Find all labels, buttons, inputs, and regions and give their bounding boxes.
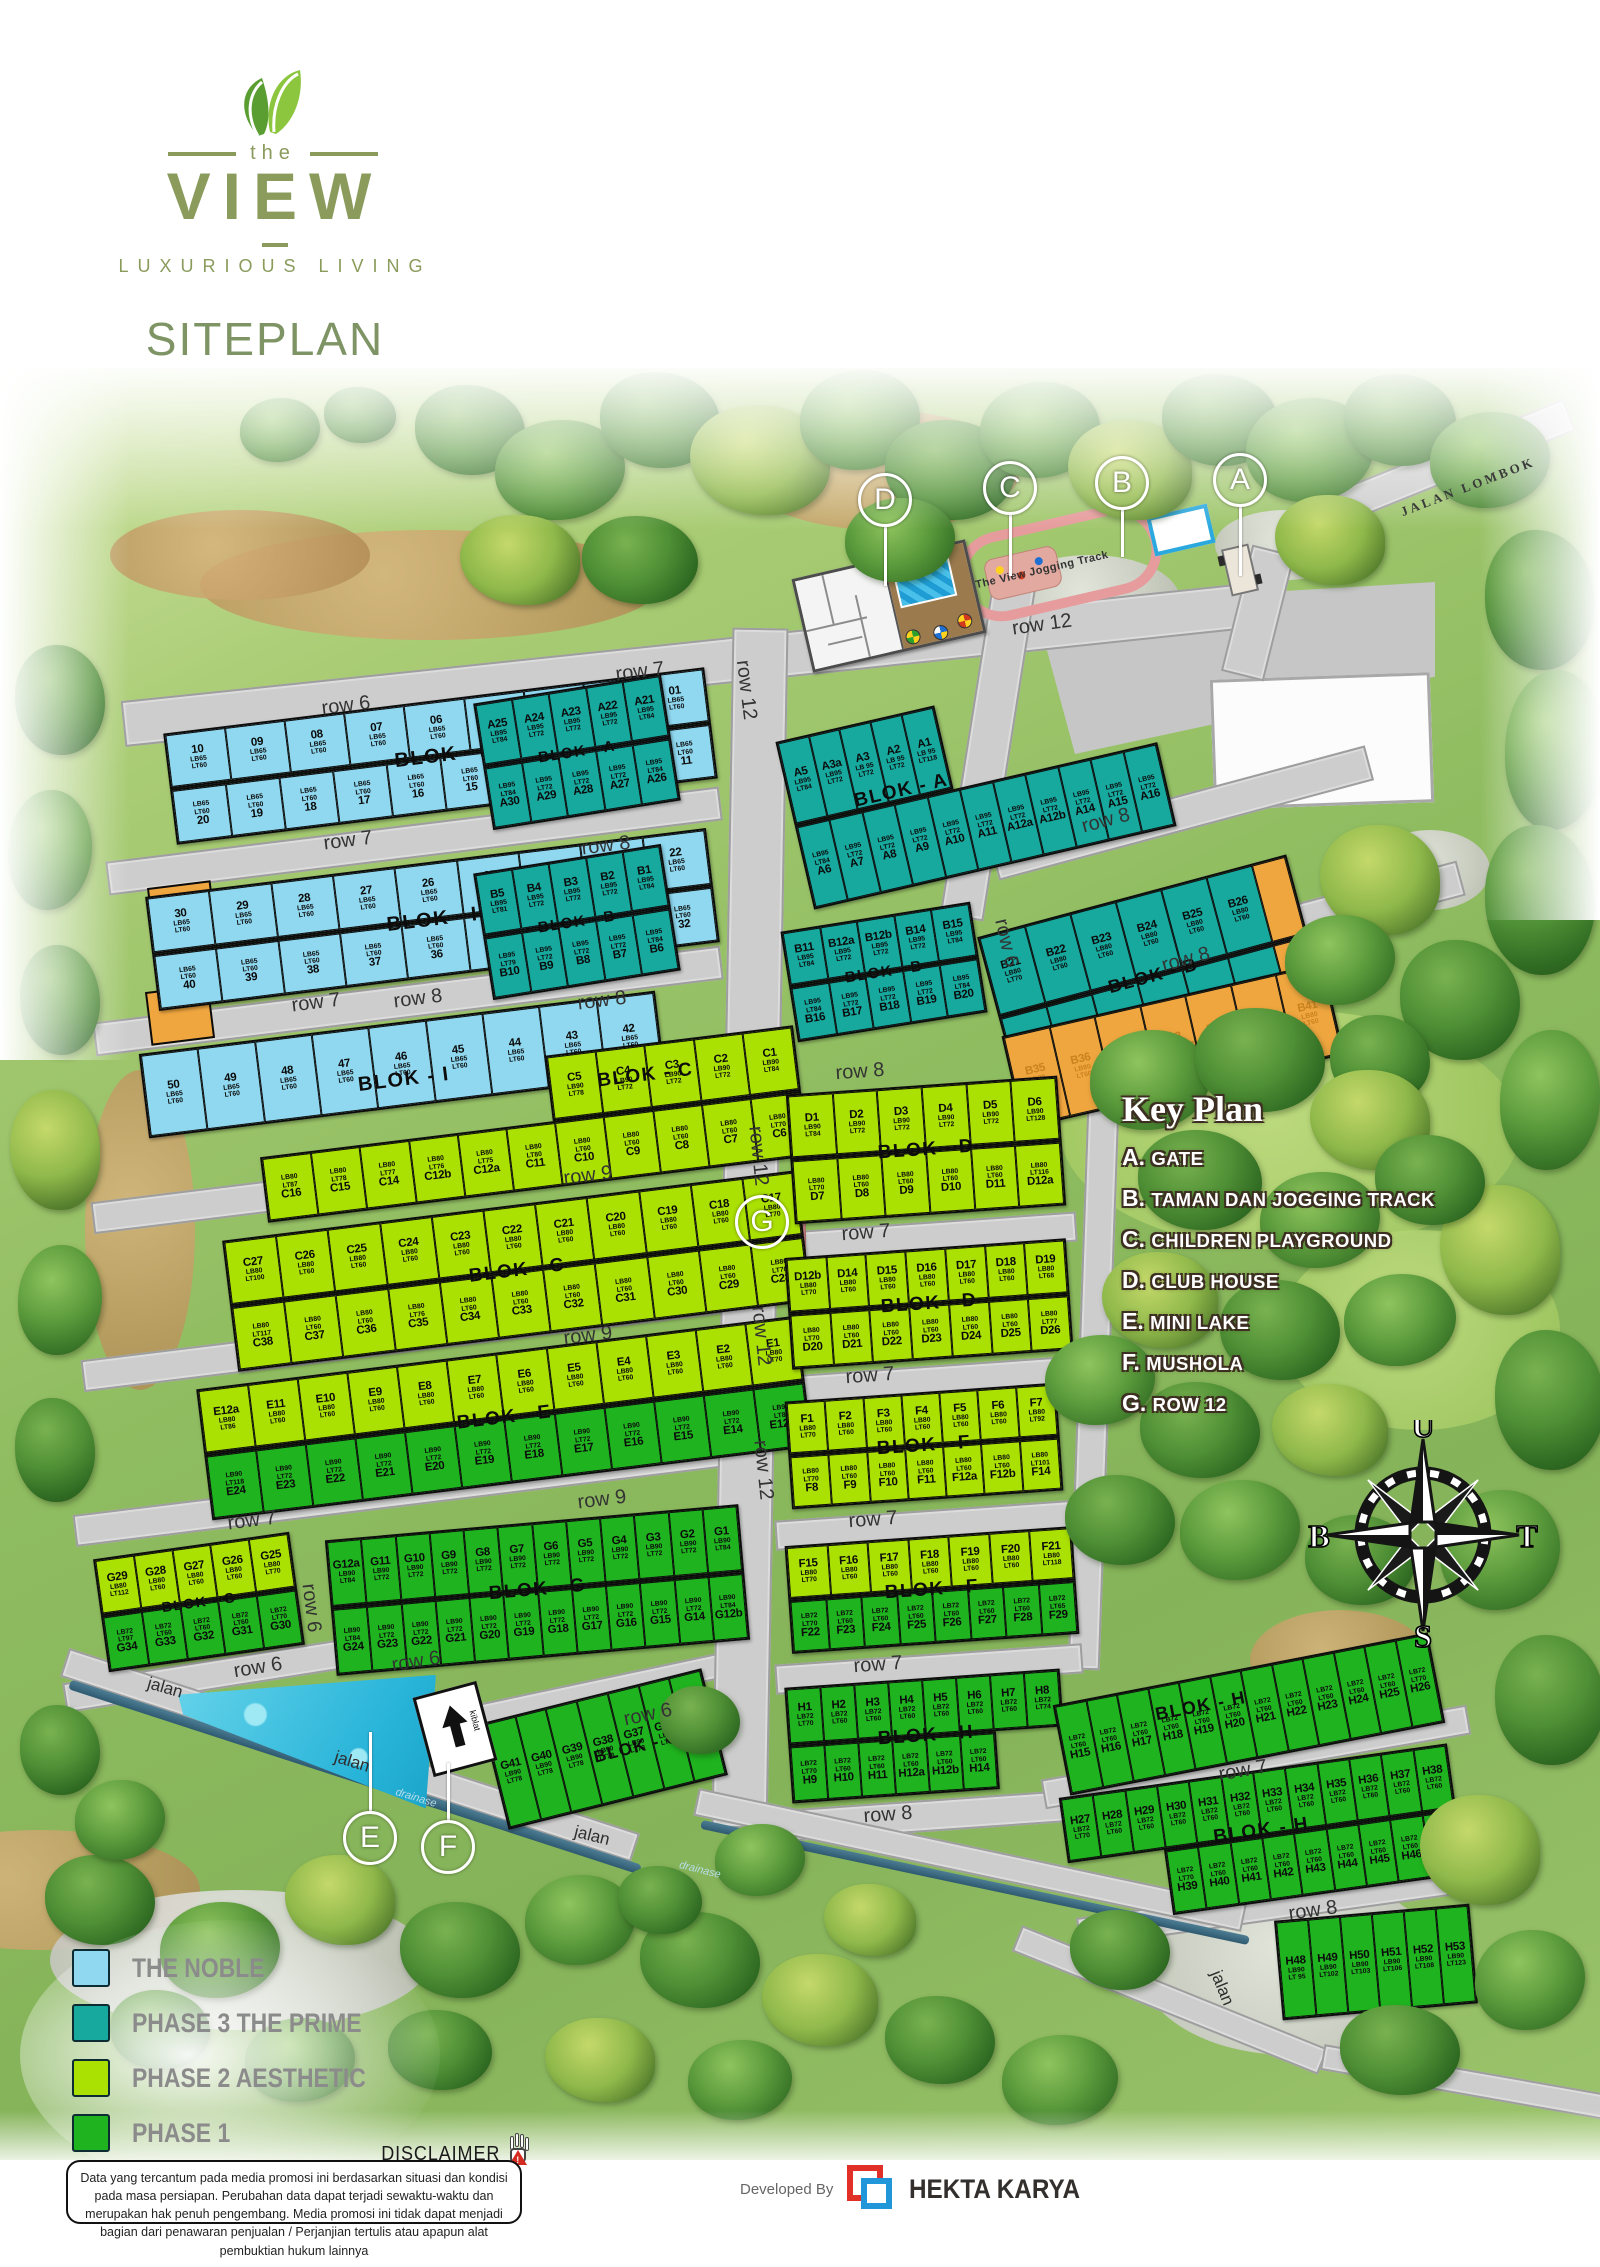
lot-lt: LT60	[934, 1711, 950, 1719]
lot-lt: LT60	[369, 1405, 385, 1414]
lot-G12a: G12aLB90LT84	[327, 1539, 367, 1606]
lot-lt: LT60	[1299, 1801, 1315, 1810]
lot-id: B18	[879, 1000, 901, 1014]
lot-lt: LT78	[568, 1090, 584, 1099]
lot-id: G30	[270, 1620, 292, 1634]
lot-id: C10	[574, 1151, 595, 1164]
lot-id: B9	[539, 960, 555, 973]
lot-id: D26	[1040, 1325, 1061, 1337]
compass-west-label: B	[1308, 1518, 1329, 1554]
tree-icon	[582, 516, 698, 604]
lot-F12b: LB80LT60F12b	[981, 1441, 1023, 1494]
lot-lt: LT72	[442, 1568, 458, 1576]
lot-lt: LT60	[1331, 1796, 1347, 1805]
lot-lt: LT60	[1427, 1783, 1443, 1792]
lot-G16: LB90LT72G16	[606, 1583, 646, 1650]
block-strip-f2: F15LB80LT70F16LB80LT60F17LB80LT60F18LB80…	[785, 1526, 1080, 1654]
lot-lt: LT72	[510, 1562, 526, 1570]
lot-38: LB65LT6038	[278, 933, 346, 994]
lot-id: A29	[536, 789, 558, 803]
lot-lt: LT84	[639, 883, 655, 892]
lot-lt: LT86	[220, 1423, 236, 1432]
lot-id: B6	[649, 942, 665, 955]
lot-lt: LT60	[968, 1708, 984, 1716]
lot-id: G15	[650, 1614, 672, 1627]
lot-F1: F1LB80LT70	[787, 1401, 829, 1454]
umbrella-icon	[932, 624, 950, 642]
lot-id: F27	[978, 1614, 998, 1626]
tree-icon	[20, 1705, 100, 1795]
key-plan-letter: G.	[1122, 1390, 1153, 1416]
lot-lt: LT60	[419, 1399, 435, 1408]
lot-F21: F21LB80LT118	[1030, 1528, 1074, 1581]
lot-id: D24	[961, 1330, 982, 1342]
block-strip-h1: H1LB72LT70H2LB72LT60H3LB72LT60H4LB72LT60…	[784, 1669, 1067, 1804]
lot-lt: LT60	[1267, 1805, 1283, 1814]
lot-id: G21	[445, 1632, 467, 1645]
lot-id: F9	[843, 1479, 857, 1491]
lot-id: H26	[1409, 1681, 1431, 1696]
road-label: row 7	[841, 1220, 891, 1246]
leaf-logo-icon	[228, 62, 318, 146]
key-plan-label: CLUB HOUSE	[1151, 1271, 1278, 1292]
lot-lt: LT60	[167, 1097, 183, 1106]
lot-lt: LT60	[270, 1417, 286, 1426]
lot-id: 39	[245, 972, 258, 984]
lot-lt: LT60	[351, 1262, 367, 1271]
legend-swatch	[72, 2059, 110, 2097]
lot-id: E24	[226, 1485, 247, 1498]
lot-id: C8	[674, 1140, 689, 1153]
lot-A26: LB95LT84A26	[632, 739, 678, 804]
key-plan-letter: C.	[1122, 1226, 1151, 1252]
lot-F20: F20LB80LT60	[989, 1531, 1033, 1584]
lot-D7: LB80LT70D7	[792, 1158, 841, 1222]
lot-id: B19	[916, 994, 938, 1008]
legend-row: PHASE 1	[72, 2113, 407, 2153]
lot-lt: LT60	[360, 903, 376, 912]
lot-id: H19	[1193, 1723, 1215, 1738]
lot-lt: LT60	[877, 1427, 893, 1435]
lot-id: C31	[615, 1291, 636, 1304]
lot-id: 17	[357, 795, 370, 807]
disclaimer-box: Data yang tercantum pada media promosi i…	[66, 2160, 522, 2224]
lot-id: C11	[525, 1157, 546, 1170]
lot-id: H22	[1286, 1705, 1308, 1720]
lot-E9: E9LB80LT60	[348, 1367, 405, 1435]
key-plan: Key Plan A. GATEB. TAMAN DAN JOGGING TRA…	[1122, 1088, 1435, 1417]
lot-C14: LB80LT77C14	[360, 1141, 416, 1209]
key-plan-letter: E.	[1122, 1308, 1150, 1334]
callout-A: A	[1213, 453, 1267, 507]
lot-lt: LT72	[983, 1118, 999, 1126]
key-plan-label: CHILDREN PLAYGROUND	[1151, 1230, 1391, 1251]
lot-lt: LT72	[476, 1565, 492, 1573]
block-strip-d1: D1LB90LT84D2LB90LT72D3LB90LT72D4LB90LT72…	[786, 1076, 1066, 1225]
lot-C25: C25LB80LT60	[328, 1223, 387, 1291]
lot-lt: LT72	[613, 1553, 629, 1561]
lot-id: 40	[183, 979, 196, 991]
lot-id: D7	[810, 1191, 825, 1203]
callout-leader-line	[1121, 509, 1125, 557]
lot-lt: LT60	[1203, 1814, 1219, 1823]
lot-id: D21	[842, 1338, 863, 1350]
key-plan-title: Key Plan	[1122, 1088, 1435, 1130]
lot-B6: LB95LT84B6	[632, 909, 678, 974]
tree-icon	[1505, 670, 1600, 830]
lot-lt: LT60	[188, 1578, 204, 1587]
compass-east-label: T	[1516, 1518, 1537, 1554]
developer-name: HEKTA KARYA	[909, 2174, 1080, 2205]
lot-E16: LB90LT72E16	[604, 1402, 661, 1470]
lot-id: C12b	[424, 1169, 452, 1183]
lot-lt: LT84	[799, 960, 815, 969]
lot-C16: LB80LT87C16	[262, 1153, 318, 1221]
lot-C20: C20LB80LT60	[587, 1192, 646, 1260]
lot-id: H21	[1255, 1711, 1277, 1726]
lot-id: B8	[575, 954, 591, 967]
lot-lt: LT60	[1001, 1706, 1017, 1714]
lot-lt: LT60	[1138, 1823, 1154, 1832]
lot-id: G18	[547, 1623, 569, 1636]
lot-20: LB65LT6020	[172, 784, 232, 842]
lot-lt: LT60	[999, 1275, 1015, 1283]
lot-29: 29LB65LT60	[209, 883, 277, 944]
lot-id: G32	[193, 1630, 215, 1644]
legend-label: PHASE 3 THE PRIME	[132, 2008, 362, 2039]
lot-id: H15	[1069, 1747, 1091, 1762]
lot-C19: C19LB80LT60	[639, 1185, 698, 1253]
lot-lt: LT60	[1363, 1792, 1379, 1801]
key-plan-item: B. TAMAN DAN JOGGING TRACK	[1122, 1185, 1435, 1212]
lot-lt: LT128	[1026, 1115, 1046, 1123]
lot-id: D20	[802, 1341, 823, 1353]
lot-09: 09LB65LT60	[225, 721, 291, 780]
lot-id: F12a	[952, 1471, 978, 1484]
lot-lt: LT60	[227, 1573, 243, 1582]
lot-id: C6	[772, 1128, 787, 1141]
lot-id: F29	[1049, 1609, 1069, 1621]
lot-E3: E3LB80LT60	[646, 1330, 703, 1398]
lot-id: 36	[430, 949, 443, 961]
lot-F8: LB80LT70F8	[790, 1455, 832, 1508]
lot-id: A28	[572, 784, 594, 798]
lot-D25: LB80LT60D25	[989, 1299, 1032, 1354]
tree-icon	[1070, 1910, 1170, 1990]
lot-lt: LT70	[800, 1432, 816, 1440]
lot-lt: LT60	[224, 1090, 240, 1099]
tree-icon	[1495, 1635, 1600, 1765]
callout-B: B	[1095, 456, 1149, 510]
lot-C37: LB80LT60C37	[284, 1295, 343, 1363]
callout-C: C	[983, 461, 1037, 515]
lot-G10: G10LB90LT72	[395, 1533, 435, 1600]
lot-id: G20	[479, 1629, 501, 1642]
lot-lt: LT60	[661, 1224, 677, 1233]
lot-G4: G4LB90LT72	[600, 1515, 640, 1582]
lot-E17: LB90LT72E17	[554, 1408, 611, 1476]
lot-id: B7	[612, 948, 628, 961]
lot-id: 15	[465, 781, 478, 793]
logo-underline	[262, 243, 288, 247]
legend-row: THE NOBLE	[72, 1948, 407, 1988]
lot-C35: LB80LT76C35	[388, 1283, 447, 1351]
lot-G14: LB90LT72G14	[674, 1577, 714, 1644]
lot-lt: LT106	[1383, 1965, 1403, 1974]
lot-id: H42	[1273, 1867, 1295, 1881]
lot-id: 20	[196, 814, 209, 826]
road-label: row 7	[845, 1363, 895, 1389]
lot-lt: LT81	[492, 906, 508, 915]
lot-lt: LT60	[251, 755, 267, 764]
lot-lt: LT118	[1043, 1559, 1062, 1567]
tree-icon	[1065, 1475, 1175, 1565]
lot-id: G12b	[715, 1608, 743, 1621]
lot-F14: LB80LT101F14	[1020, 1439, 1062, 1492]
lot-E10: E10LB80LT60	[298, 1373, 355, 1441]
developer-credit: Developed By HEKTA KARYA	[740, 2165, 1099, 2213]
lot-id: E16	[623, 1436, 644, 1449]
lot-lt: LT60	[842, 1574, 858, 1582]
lot-lt: LT60	[175, 926, 191, 935]
lot-lt: LT60	[1170, 1819, 1186, 1828]
dirt-patch	[110, 510, 370, 600]
lot-lt: LT72	[602, 889, 618, 898]
lot-id: G34	[116, 1641, 138, 1655]
lot-id: H40	[1209, 1876, 1231, 1890]
logo-dash-right	[310, 152, 378, 156]
lot-lt: LT60	[920, 1281, 936, 1289]
lot-id: F23	[836, 1624, 856, 1636]
lot-C24: C24LB80LT60	[380, 1217, 439, 1285]
lot-lt: LT84	[639, 713, 655, 722]
lot-G12b: LB90LT84G12b	[708, 1574, 748, 1641]
lot-B20: LB95LT84B20	[940, 959, 985, 1016]
key-plan-item: G. ROW 12	[1122, 1390, 1435, 1417]
kiblat-arrow-stem	[449, 1720, 465, 1748]
lot-id: 38	[306, 964, 319, 976]
lot-id: B10	[499, 965, 521, 979]
legend-label: PHASE 1	[132, 2118, 230, 2149]
lot-C36: LB80LT60C36	[336, 1289, 395, 1357]
lot-F2: F2LB80LT60	[825, 1398, 867, 1451]
lot-lt: LT60	[1106, 1828, 1122, 1837]
lot-id: E19	[474, 1454, 495, 1467]
lot-id: G16	[616, 1617, 638, 1630]
lot-lt: LT60	[713, 1217, 729, 1226]
callout-leader-line	[884, 526, 888, 586]
lot-C12a: LB80LT75C12a	[458, 1129, 514, 1197]
lot-G3: G3LB90LT72	[634, 1512, 674, 1579]
lot-lt: LT60	[667, 1368, 683, 1377]
lot-lt: LT60	[991, 1419, 1007, 1427]
lot-28: 28LB65LT60	[271, 876, 339, 937]
key-plan-letter: A.	[1122, 1144, 1151, 1170]
key-plan-label: GATE	[1151, 1148, 1203, 1169]
lot-id: H20	[1224, 1717, 1246, 1732]
lot-E2: E2LB80LT60	[695, 1324, 752, 1392]
road-label: row 8	[863, 1802, 913, 1828]
lot-lt: LT72	[894, 1124, 910, 1132]
lot-id: H18	[1162, 1729, 1184, 1744]
lot-lt: LT108	[1415, 1962, 1435, 1971]
lot-lt: LT60	[959, 1278, 975, 1286]
key-plan-label: MINI LAKE	[1150, 1312, 1249, 1333]
siteplan-poster: the VIEW LUXURIOUS LIVING SITEPLAN	[0, 0, 1600, 2267]
lot-lt: LT72	[408, 1571, 424, 1579]
block-strip-f1: F1LB80LT70F2LB80LT60F3LB80LT60F4LB80LT60…	[785, 1383, 1064, 1510]
lot-lt: LT60	[610, 1230, 626, 1239]
lot-lt: LT72	[850, 1127, 866, 1135]
legend-swatch	[72, 2004, 110, 2042]
lot-lt: LT102	[1319, 1971, 1339, 1980]
lot-lt: LT74	[1035, 1704, 1051, 1712]
lot-id: C7	[723, 1134, 738, 1147]
lot-E21: LB90LT72E21	[356, 1432, 413, 1500]
lot-id: F8	[805, 1482, 819, 1494]
legend-label: THE NOBLE	[132, 1953, 265, 1984]
lot-id: H11	[868, 1769, 888, 1781]
lot-D12b: D12bLB80LT70	[787, 1257, 830, 1312]
lot-id: A10	[944, 833, 966, 848]
lot-id: E18	[524, 1448, 545, 1461]
road-label: row 7	[853, 1652, 903, 1678]
compass-north-label: U	[1411, 1420, 1434, 1444]
lot-lt: LT60	[880, 1284, 896, 1292]
lot-C9: LB80LT60C9	[604, 1111, 660, 1179]
block-strip-d2: D12bLB80LT70D14LB80LT60D15LB80LT60D16LB8…	[784, 1238, 1073, 1369]
lot-id: E22	[325, 1473, 346, 1486]
tree-icon	[1340, 2005, 1460, 2095]
lot-lt: LT92	[1029, 1416, 1045, 1424]
lot-id: E15	[673, 1430, 694, 1443]
lot-lt: LT60	[953, 1421, 969, 1429]
lot-lt: LT60	[866, 1716, 882, 1724]
lot-id: D25	[1000, 1327, 1021, 1339]
lot-id: C9	[625, 1146, 640, 1159]
tree-icon	[400, 1902, 520, 1998]
callout-leader-line	[1239, 506, 1243, 576]
lot-D1: D1LB90LT84	[788, 1093, 837, 1157]
lot-D12a: LB80LT116D12a	[1015, 1143, 1064, 1207]
lot-id: C32	[563, 1298, 584, 1311]
lot-C12b: LB80LT76C12b	[409, 1135, 465, 1203]
lot-H2: H2LB72LT60	[820, 1685, 858, 1741]
legend-swatch	[72, 1949, 110, 1987]
lot-id: G24	[343, 1641, 365, 1654]
lot-lt: LT60	[832, 1718, 848, 1726]
lot-id: A7	[849, 856, 865, 870]
lot-lt: LT 95	[1288, 1974, 1306, 1983]
lot-id: B20	[953, 988, 975, 1002]
lot-id: E21	[375, 1466, 396, 1479]
lot-C5: C5LB90LT78	[547, 1051, 603, 1119]
lot-B1: B1LB95LT84	[622, 846, 668, 911]
lot-lt: LT60	[923, 1568, 939, 1576]
lot-G15: LB90LT72G15	[640, 1580, 680, 1647]
lot-D2: D2LB90LT72	[832, 1090, 881, 1154]
lot-id: H9	[802, 1774, 817, 1786]
lot-08: 08LB65LT60	[285, 713, 351, 772]
lot-id: H12a	[898, 1767, 925, 1780]
compass-south-label: S	[1414, 1618, 1432, 1650]
lot-id: A16	[1139, 788, 1161, 803]
page-title: SITEPLAN	[120, 312, 410, 366]
lot-lt: LT60	[1395, 1787, 1411, 1796]
lot-lt: LT68	[1039, 1273, 1055, 1281]
key-plan-label: ROW 12	[1153, 1394, 1227, 1415]
lot-id: G33	[154, 1636, 176, 1650]
lot-lt: LT60	[669, 703, 685, 712]
lot-lt: LT60	[469, 1393, 485, 1402]
lot-E12a: E12aLB80LT86	[198, 1385, 255, 1453]
lot-lt: LT60	[454, 1249, 470, 1258]
lot-D6: D6LB90LT128	[1011, 1078, 1060, 1142]
lot-lt: LT60	[915, 1424, 931, 1432]
lot-id: H43	[1305, 1862, 1327, 1876]
lot-id: H17	[1131, 1735, 1153, 1750]
lot-id: A8	[881, 849, 897, 863]
lot-lt: LT72	[374, 1574, 390, 1582]
lot-30: 30LB65LT60	[147, 891, 215, 952]
lot-id: A9	[914, 841, 930, 855]
key-plan-item: F. MUSHOLA	[1122, 1349, 1435, 1376]
lot-19: LB65LT6019	[226, 778, 286, 836]
lot-lt: LT72	[544, 1559, 560, 1567]
lot-F22: LB72LT70F22	[790, 1599, 829, 1651]
lot-E8: E8LB80LT60	[397, 1361, 454, 1429]
lot-id: F12b	[990, 1468, 1016, 1481]
key-plan-label: TAMAN DAN JOGGING TRACK	[1151, 1189, 1435, 1210]
lot-lt: LT60	[191, 762, 207, 771]
legend-label: PHASE 2 AESTHETIC	[132, 2063, 366, 2094]
lot-lt: LT70	[801, 1289, 817, 1297]
lot-lt: LT72	[715, 1072, 731, 1081]
lot-18: LB65LT6018	[280, 771, 340, 829]
tree-icon	[45, 1855, 155, 1945]
umbrella-icon	[956, 612, 974, 630]
lot-lt: LT70	[1074, 1832, 1090, 1841]
lot-10: 10LB65LT60	[165, 728, 231, 787]
lot-id: E23	[275, 1479, 296, 1492]
lot-lt: LT60	[236, 918, 252, 927]
lot-id: C36	[356, 1323, 377, 1336]
lot-lt: LT72	[579, 1556, 595, 1564]
lot-E4: E4LB80LT60	[596, 1336, 653, 1404]
lot-lt: LT72	[529, 900, 545, 909]
lot-id: F26	[942, 1617, 962, 1629]
lot-id: 16	[411, 788, 424, 800]
lot-id: F24	[871, 1622, 891, 1634]
callout-E: E	[343, 1811, 397, 1865]
lot-id: G14	[684, 1611, 706, 1624]
lot-id: B17	[842, 1006, 864, 1020]
lot-H10: LB72LT60H10	[824, 1743, 862, 1799]
lot-id: H16	[1100, 1741, 1122, 1756]
lot-lt: LT60	[402, 1255, 418, 1264]
lot-id: D22	[881, 1336, 902, 1348]
lot-lt: LT72	[873, 949, 889, 958]
lot-G9: G9LB90LT72	[429, 1530, 469, 1597]
lot-id: G23	[377, 1638, 399, 1651]
lot-id: E20	[424, 1460, 445, 1473]
lot-lt: LT60	[900, 1713, 916, 1721]
lot-id: H45	[1369, 1853, 1391, 1867]
lot-lt: LT60	[669, 865, 685, 874]
lot-H7: H7LB72LT60	[990, 1673, 1028, 1729]
lot-id: A30	[499, 795, 521, 809]
umbrella-icon	[904, 628, 922, 646]
